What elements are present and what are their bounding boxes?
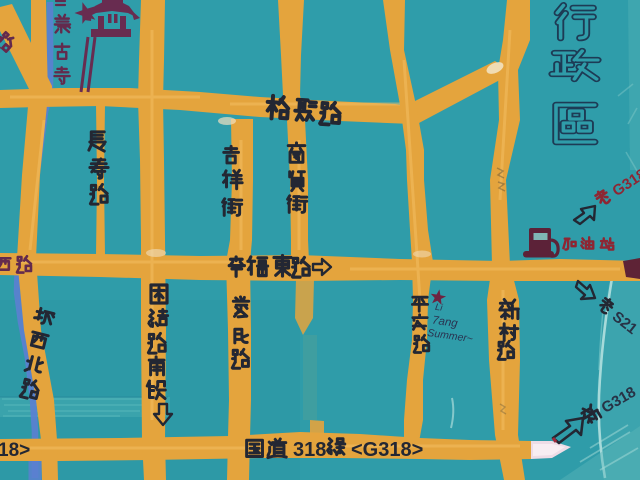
svg-text:318: 318 xyxy=(293,439,326,461)
svg-text:18>: 18> xyxy=(0,440,30,461)
svg-text:<G318>: <G318> xyxy=(351,439,423,461)
